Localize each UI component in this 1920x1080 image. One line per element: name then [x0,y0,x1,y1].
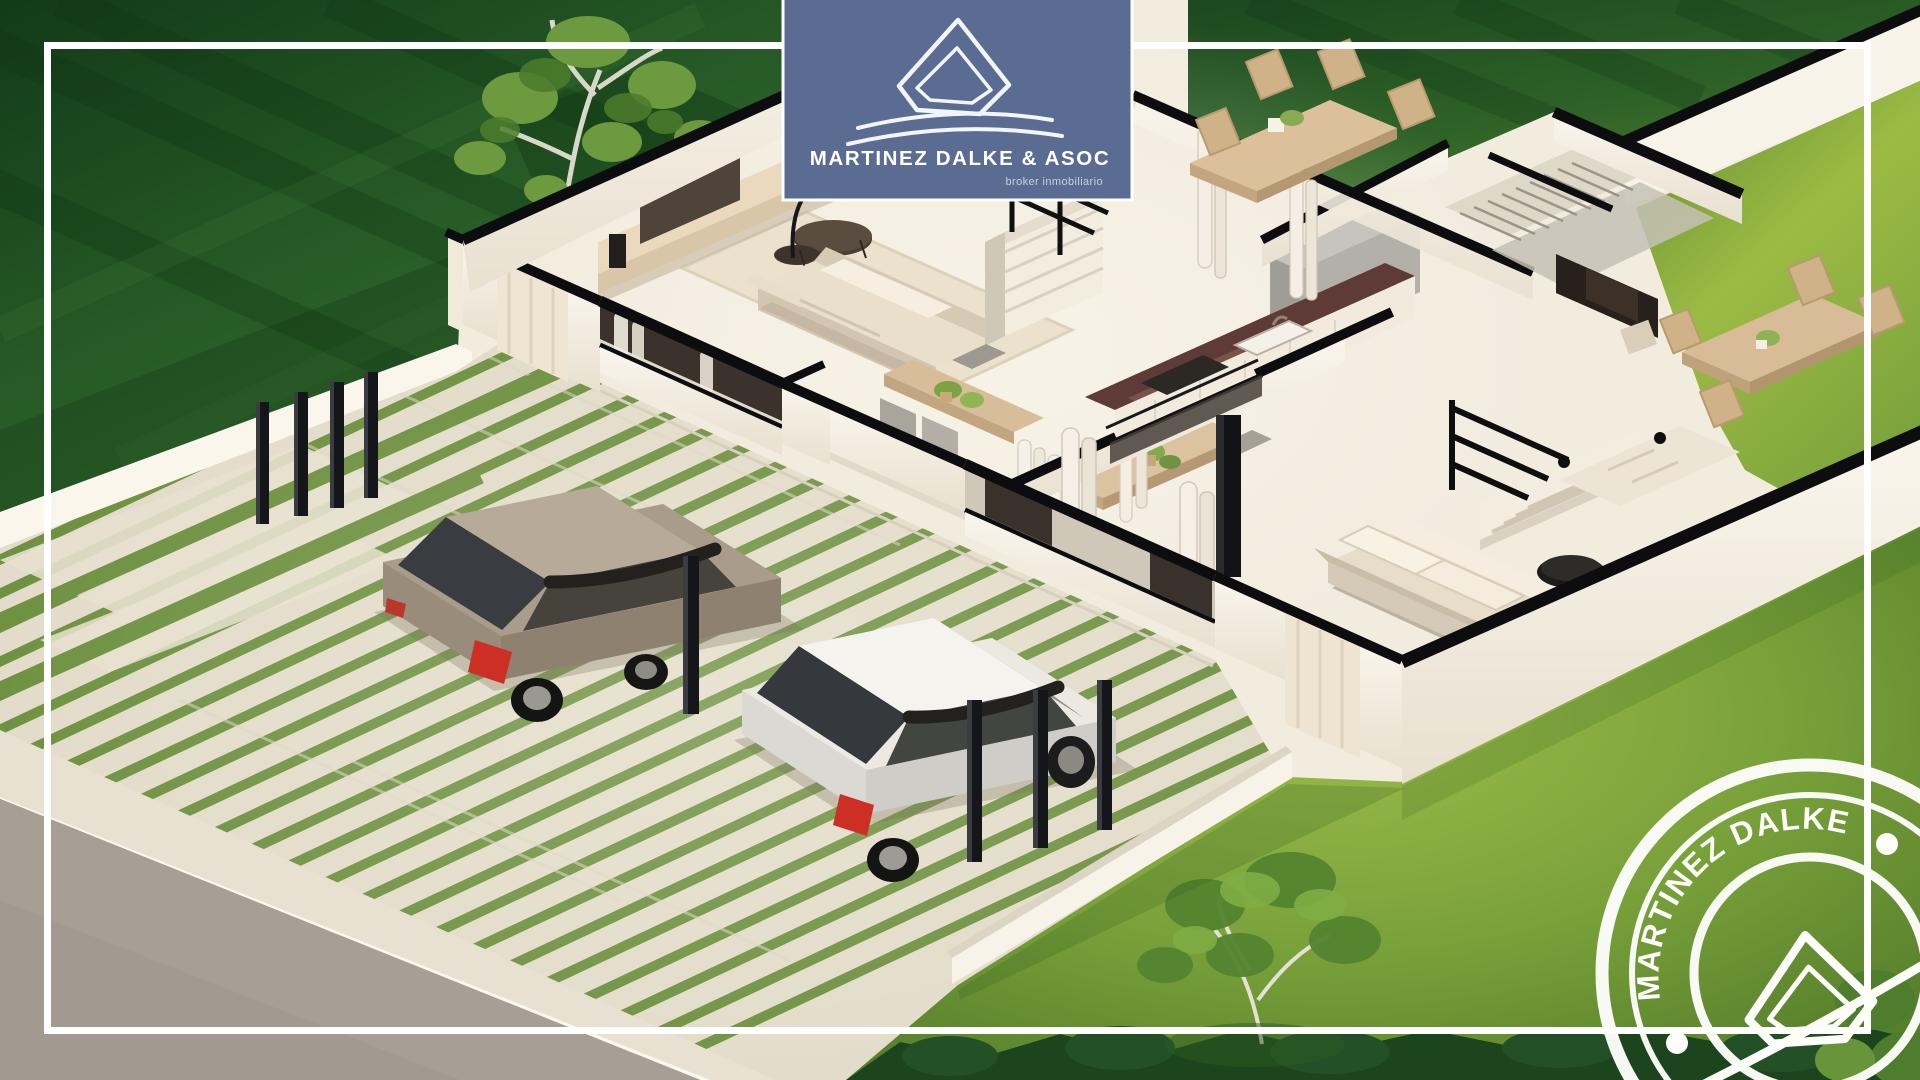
svg-text:broker inmobiliario: broker inmobiliario [1006,176,1103,188]
svg-text:MARTINEZ DALKE & ASOC: MARTINEZ DALKE & ASOC [810,147,1110,170]
